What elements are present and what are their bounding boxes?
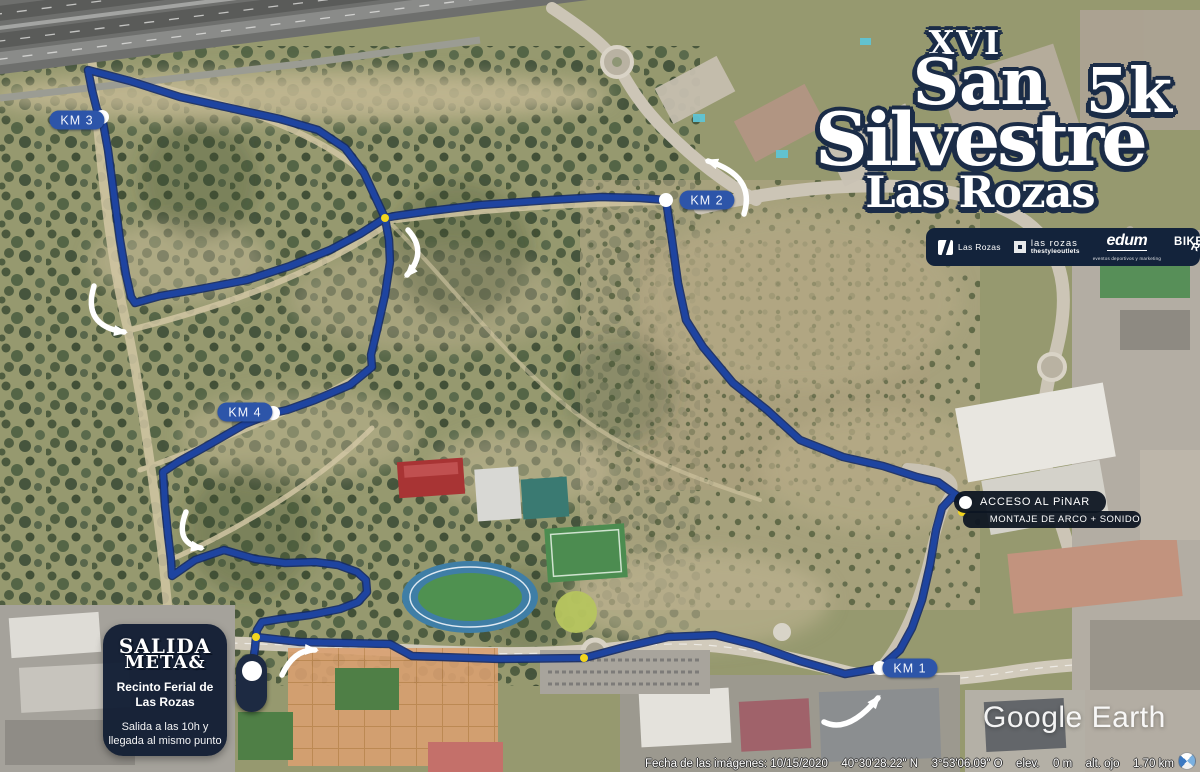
eye-altitude-label: alt. ojo bbox=[1086, 758, 1120, 770]
style-outlets-line2: thestyleoutlets bbox=[1031, 249, 1080, 256]
elevation-value: 0 m bbox=[1053, 758, 1072, 770]
race-title: XVI San 5k Silvestre Las Rozas bbox=[770, 28, 1190, 214]
acceso-al-pinar-label: ACCESO AL PiNAR bbox=[954, 491, 1106, 513]
waypoint-dot bbox=[381, 214, 389, 222]
km2-marker-label: KM 2 bbox=[679, 191, 734, 210]
latitude-value: 40°30'28.22" N bbox=[841, 758, 918, 770]
start-box-note-line1: Salida a las 10h y bbox=[122, 721, 209, 733]
google-earth-watermark: Google Earth bbox=[983, 701, 1166, 735]
google-earth-viewport: XVI San 5k Silvestre Las Rozas Las Rozas… bbox=[0, 0, 1200, 772]
start-box-venue-line2: Las Rozas bbox=[135, 695, 194, 709]
style-outlets-logo-icon bbox=[1014, 241, 1026, 253]
start-box-title: SALIDA META& bbox=[103, 637, 227, 671]
sponsor-style-outlets: las rozas thestyleoutlets bbox=[1014, 239, 1080, 255]
eye-altitude-value: 1.70 km bbox=[1133, 758, 1174, 770]
km3-marker-label: KM 3 bbox=[49, 111, 104, 130]
start-box-note-line2: llegada al mismo punto bbox=[108, 735, 221, 747]
imagery-date: Fecha de las imágenes: 10/15/2020 bbox=[645, 758, 828, 770]
start-finish-info-box: SALIDA META& Recinto Ferial de Las Rozas… bbox=[103, 624, 227, 756]
km4-marker-label: KM 4 bbox=[217, 403, 272, 422]
start-box-venue-line1: Recinto Ferial de bbox=[117, 680, 214, 694]
waypoint-dot bbox=[252, 633, 260, 641]
las-rozas-logo-icon bbox=[938, 240, 953, 255]
race-distance: 5k bbox=[1086, 62, 1172, 119]
montaje-label: MONTAJE DE ARCO + SONIDO bbox=[963, 511, 1141, 528]
acceso-text: ACCESO AL PiNAR bbox=[980, 496, 1090, 508]
compass-icon[interactable] bbox=[1178, 752, 1196, 770]
elevation-label: elev. bbox=[1016, 758, 1039, 770]
status-bar: Fecha de las imágenes: 10/15/2020 40°30'… bbox=[645, 758, 1174, 770]
sponsor-las-rozas-label: Las Rozas bbox=[958, 242, 1001, 252]
waypoint-dot bbox=[580, 654, 588, 662]
start-finish-pin bbox=[236, 654, 267, 712]
km2-dot bbox=[659, 193, 673, 207]
longitude-value: 3°53'06.09" O bbox=[932, 758, 1003, 770]
start-box-venue: Recinto Ferial de Las Rozas bbox=[103, 680, 227, 710]
acceso-dot-icon bbox=[959, 496, 972, 509]
edum-tagline: eventos deportivos y marketing bbox=[1093, 257, 1161, 262]
bike-run-word2: RUN bbox=[1190, 241, 1200, 259]
sponsor-bike-run: BIKE RUN bbox=[1174, 236, 1190, 258]
start-box-note: Salida a las 10h y llegada al mismo punt… bbox=[103, 720, 227, 749]
sponsor-bar: Las Rozas las rozas thestyleoutlets edum… bbox=[926, 228, 1200, 266]
edum-logo-text: edum bbox=[1107, 233, 1148, 251]
start-finish-pin-dot bbox=[242, 661, 262, 681]
sponsor-las-rozas: Las Rozas bbox=[938, 240, 1001, 255]
km1-marker-label: KM 1 bbox=[882, 659, 937, 678]
sponsor-edum: edum eventos deportivos y marketing bbox=[1093, 233, 1161, 262]
